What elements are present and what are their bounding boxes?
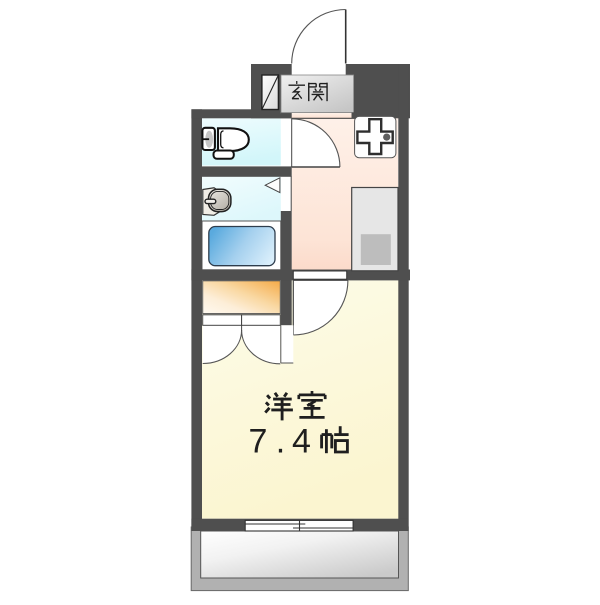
svg-text:7: 7	[248, 423, 267, 461]
svg-text:.: .	[276, 423, 285, 461]
svg-text:4: 4	[292, 423, 311, 461]
